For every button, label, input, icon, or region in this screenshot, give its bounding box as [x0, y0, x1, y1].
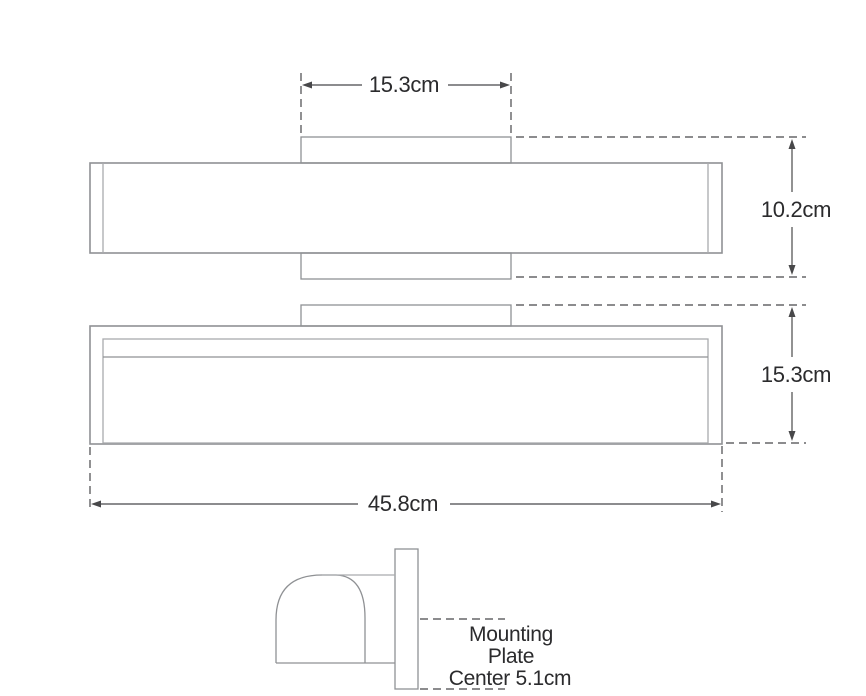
arrowhead-right-icon	[500, 82, 510, 89]
front-view-inner-frame	[103, 339, 708, 443]
arrowhead-left-icon	[302, 82, 312, 89]
front-view	[90, 305, 722, 444]
dimension-overall-width: 45.8cm	[90, 446, 722, 516]
front-view-body	[90, 326, 722, 444]
arrowhead-left-icon	[91, 501, 101, 508]
overall-width-label: 45.8cm	[368, 491, 438, 516]
dimension-bracket-width: 15.3cm	[301, 72, 511, 135]
arrowhead-down-icon	[789, 431, 796, 441]
mounting-side-view	[276, 549, 418, 689]
front-view-bracket	[301, 305, 511, 326]
mounting-note-line2: Plate	[488, 645, 534, 668]
arrowhead-down-icon	[789, 265, 796, 275]
mounting-plate-note: Mounting Plate Center 5.1cm	[420, 619, 571, 690]
depth-label: 10.2cm	[761, 197, 831, 222]
dimension-diagram: 15.3cm 10.2cm 15.3cm	[0, 0, 866, 696]
top-view-bracket-upper	[301, 137, 511, 163]
dimension-depth: 10.2cm	[516, 137, 831, 277]
diagram-canvas: 15.3cm 10.2cm 15.3cm	[0, 0, 866, 696]
mounting-note-line3: Center 5.1cm	[449, 667, 571, 690]
front-height-label: 15.3cm	[761, 362, 831, 387]
top-view-bracket-lower	[301, 253, 511, 279]
fixture-arm-dome	[276, 575, 365, 663]
bracket-width-label: 15.3cm	[369, 72, 439, 97]
mounting-plate	[395, 549, 418, 689]
arrowhead-up-icon	[789, 307, 796, 317]
top-view-body	[90, 163, 722, 253]
arrowhead-up-icon	[789, 139, 796, 149]
mounting-note-line1: Mounting	[469, 623, 553, 646]
top-view	[90, 137, 722, 279]
arrowhead-right-icon	[711, 501, 721, 508]
